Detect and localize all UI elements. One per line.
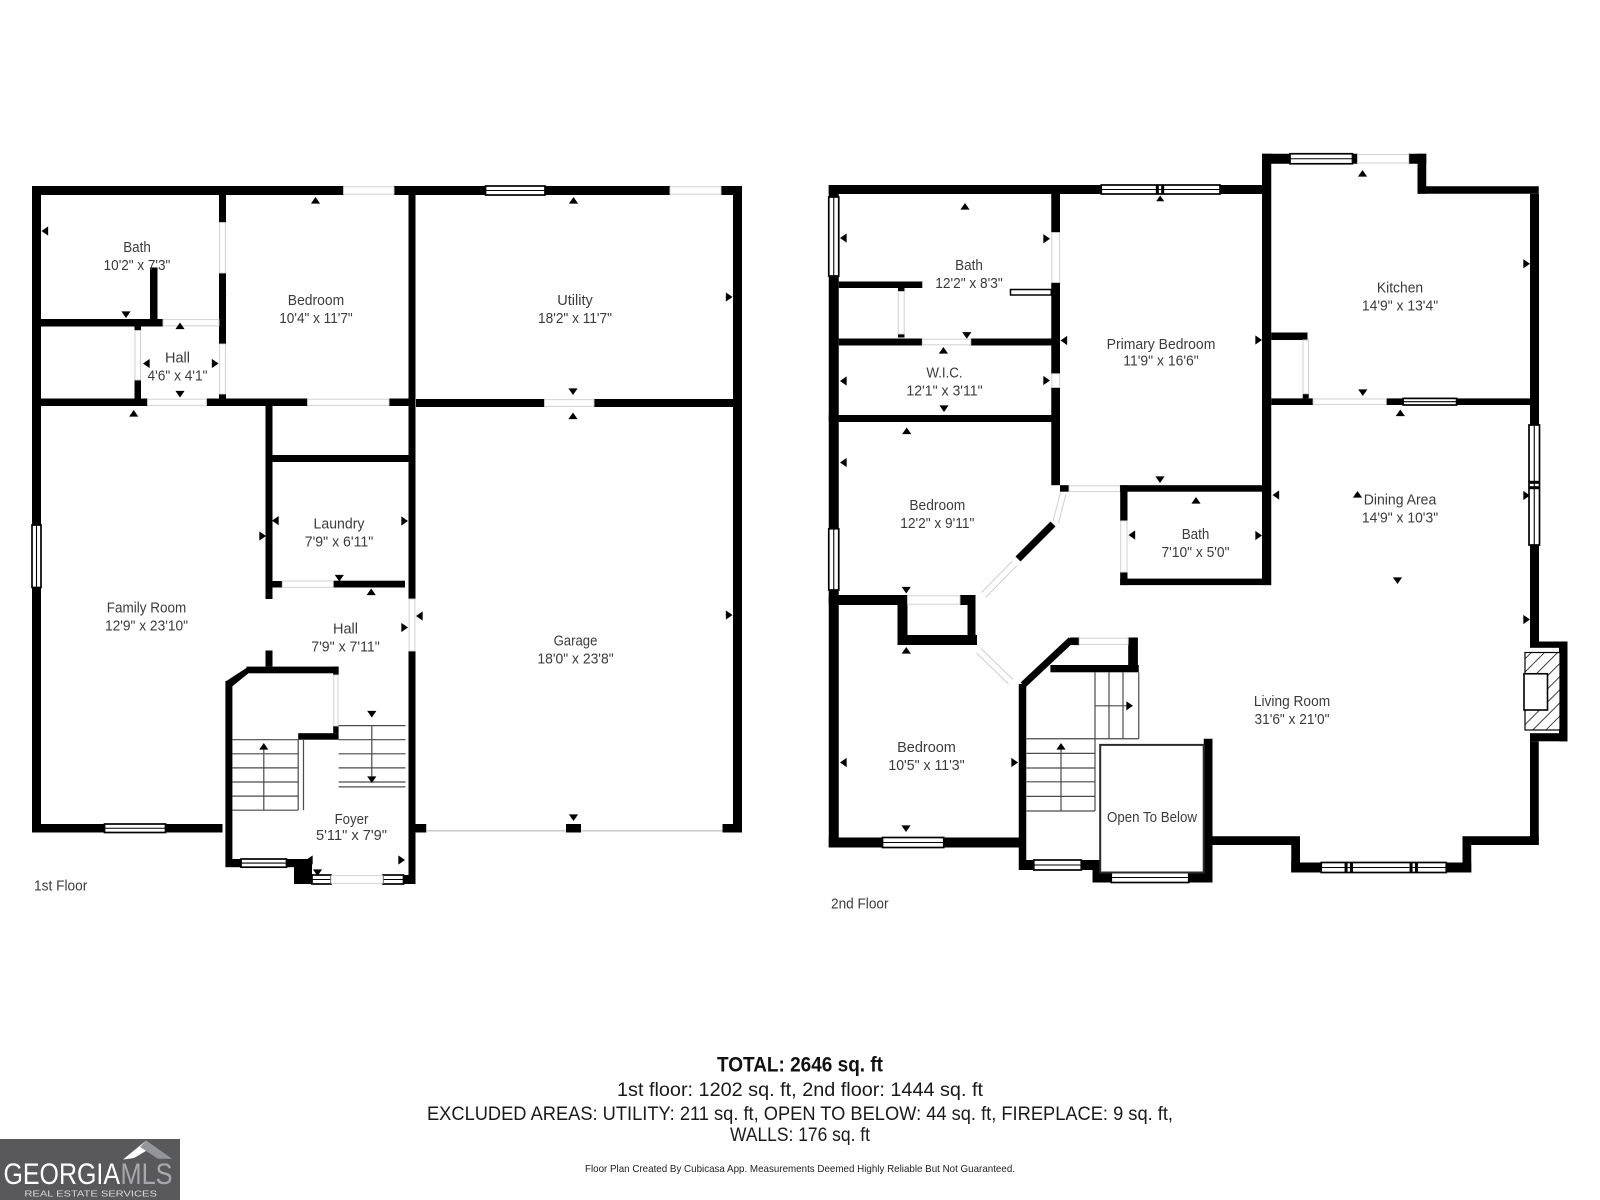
- svg-text:W.I.C.: W.I.C.: [926, 365, 962, 382]
- svg-text:MLS: MLS: [121, 1158, 173, 1191]
- svg-text:2nd Floor: 2nd Floor: [831, 896, 889, 913]
- svg-text:GEORGIA: GEORGIA: [4, 1158, 121, 1191]
- svg-text:Open To Below: Open To Below: [1107, 809, 1197, 826]
- svg-text:Bedroom: Bedroom: [909, 497, 965, 514]
- svg-text:11'9" x 16'6": 11'9" x 16'6": [1123, 353, 1198, 370]
- svg-text:1st floor: 1202 sq. ft, 2nd fl: 1st floor: 1202 sq. ft, 2nd floor: 1444 …: [617, 1079, 984, 1101]
- svg-text:10'4" x 11'7": 10'4" x 11'7": [279, 310, 353, 327]
- svg-text:7'9" x 6'11": 7'9" x 6'11": [305, 533, 374, 550]
- svg-text:Bedroom: Bedroom: [288, 292, 344, 309]
- svg-text:12'9" x 23'10": 12'9" x 23'10": [105, 617, 188, 634]
- svg-text:12'1" x 3'11": 12'1" x 3'11": [906, 383, 982, 400]
- svg-text:Bath: Bath: [123, 239, 151, 256]
- svg-text:12'2" x 8'3": 12'2" x 8'3": [935, 275, 1003, 292]
- svg-text:REAL ESTATE SERVICES: REAL ESTATE SERVICES: [24, 1190, 157, 1199]
- svg-text:Primary Bedroom: Primary Bedroom: [1107, 336, 1216, 353]
- svg-text:7'9" x 7'11": 7'9" x 7'11": [311, 638, 380, 655]
- svg-text:WALLS: 176 sq. ft: WALLS: 176 sq. ft: [730, 1124, 871, 1146]
- svg-text:Floor Plan Created By Cubicasa: Floor Plan Created By Cubicasa App. Meas…: [585, 1163, 1015, 1175]
- svg-text:18'0" x 23'8": 18'0" x 23'8": [537, 651, 613, 668]
- svg-text:12'2" x 9'11": 12'2" x 9'11": [900, 515, 974, 532]
- svg-text:Bath: Bath: [1182, 526, 1210, 543]
- svg-text:31'6" x 21'0": 31'6" x 21'0": [1255, 711, 1330, 728]
- svg-text:Garage: Garage: [554, 633, 598, 650]
- svg-text:Dining Area: Dining Area: [1364, 492, 1437, 509]
- svg-text:Hall: Hall: [165, 350, 190, 367]
- svg-text:Family Room: Family Room: [107, 599, 186, 616]
- svg-text:Living Room: Living Room: [1254, 693, 1330, 710]
- svg-text:4'6" x 4'1": 4'6" x 4'1": [148, 368, 208, 385]
- svg-text:EXCLUDED AREAS: UTILITY: 211 s: EXCLUDED AREAS: UTILITY: 211 sq. ft, OPE…: [427, 1103, 1173, 1125]
- svg-text:Laundry: Laundry: [314, 515, 365, 532]
- svg-text:10'5" x 11'3": 10'5" x 11'3": [888, 757, 964, 774]
- svg-text:Utility: Utility: [557, 292, 593, 309]
- svg-text:14'9" x 13'4": 14'9" x 13'4": [1362, 298, 1438, 315]
- svg-text:10'2" x 7'3": 10'2" x 7'3": [104, 257, 171, 274]
- svg-text:Hall: Hall: [333, 620, 358, 637]
- svg-text:Bedroom: Bedroom: [897, 739, 956, 756]
- svg-text:7'10" x 5'0": 7'10" x 5'0": [1162, 544, 1230, 561]
- svg-text:18'2" x 11'7": 18'2" x 11'7": [538, 310, 612, 327]
- svg-text:5'11" x 7'9": 5'11" x 7'9": [316, 827, 387, 844]
- svg-text:14'9" x 10'3": 14'9" x 10'3": [1362, 510, 1438, 527]
- svg-text:Bath: Bath: [955, 257, 983, 274]
- svg-text:1st Floor: 1st Floor: [34, 878, 87, 895]
- svg-text:Foyer: Foyer: [335, 811, 369, 828]
- svg-text:Kitchen: Kitchen: [1377, 280, 1423, 297]
- svg-text:TOTAL: 2646 sq. ft: TOTAL: 2646 sq. ft: [717, 1054, 883, 1077]
